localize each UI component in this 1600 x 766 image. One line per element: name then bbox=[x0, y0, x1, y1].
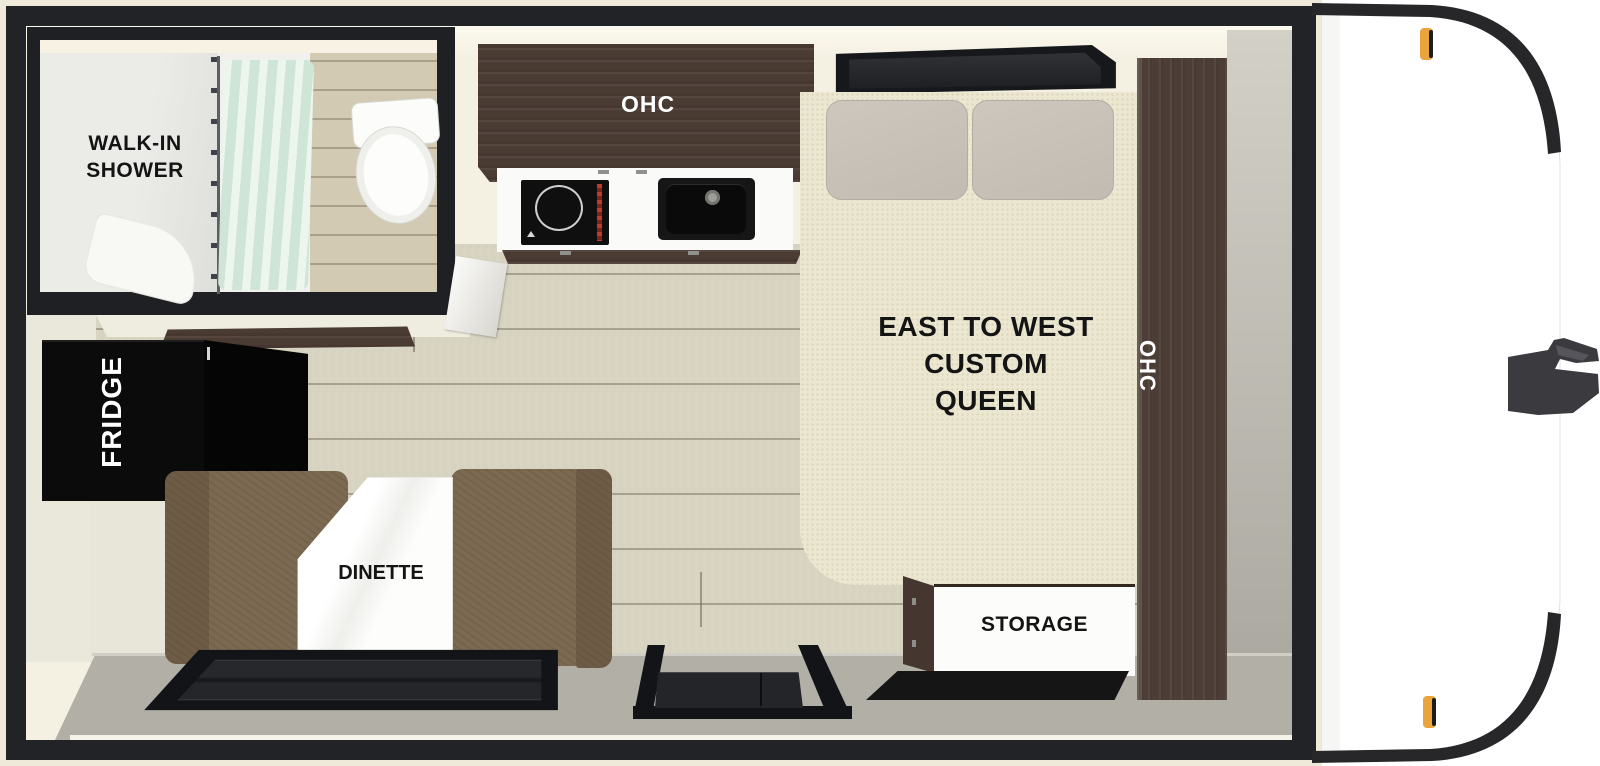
left-interior-wall-lower bbox=[90, 495, 172, 663]
dinette-label: DINETTE bbox=[306, 560, 456, 586]
bed-label: EAST TO WEST CUSTOM QUEEN bbox=[816, 306, 1156, 421]
bed-label-line3: QUEEN bbox=[935, 382, 1037, 419]
floor-plank-seam bbox=[700, 572, 702, 627]
pillow-icon bbox=[826, 100, 968, 200]
dinette-bench-right-back bbox=[576, 469, 612, 668]
kitchen-base-cabinet bbox=[502, 250, 802, 264]
bathroom-label-line2: SHOWER bbox=[86, 157, 184, 184]
bathroom-label-line1: WALK-IN bbox=[88, 130, 181, 157]
cabinet-handle-icon bbox=[636, 170, 647, 174]
storage-label: STORAGE bbox=[934, 612, 1135, 638]
bed-label-line1: EAST TO WEST bbox=[878, 308, 1094, 345]
rv-floorplan: WALK-IN SHOWER OHC EAST TO WEST CUSTOM Q… bbox=[0, 0, 1600, 766]
bed-label-line2: CUSTOM bbox=[924, 345, 1048, 382]
shower-curtain-icon bbox=[218, 60, 314, 290]
front-cap bbox=[1280, 0, 1600, 766]
floor-mat-icon bbox=[866, 671, 1129, 700]
burner-icon bbox=[535, 185, 583, 231]
cabinet-handle-icon bbox=[688, 251, 699, 255]
marker-light-bottom-shadow bbox=[1432, 698, 1436, 726]
bathroom-ceiling-band bbox=[40, 40, 437, 53]
bathroom-label: WALK-IN SHOWER bbox=[55, 128, 215, 186]
pillow-icon bbox=[972, 100, 1114, 200]
entry-step-icon bbox=[655, 670, 803, 708]
fridge-handle-icon bbox=[207, 347, 210, 360]
bottom-wall-trim bbox=[70, 735, 1292, 740]
dinette-bench-left-back bbox=[165, 471, 209, 664]
storage-side-panel bbox=[903, 573, 934, 673]
kitchen-ohc-label: OHC bbox=[598, 91, 698, 117]
sink-drain-icon bbox=[705, 190, 720, 205]
storage-hinge-icon bbox=[912, 640, 916, 647]
bedside-ohc-label: OHC bbox=[1135, 331, 1159, 401]
storage-hinge-icon bbox=[912, 598, 916, 605]
rear-window-glass bbox=[170, 658, 545, 702]
cabinet-handle-icon bbox=[598, 170, 609, 174]
front-cap-shade bbox=[1322, 6, 1340, 760]
cabinet-handle-icon bbox=[560, 251, 571, 255]
cooktop-controls-icon bbox=[597, 184, 602, 241]
entry-step-seam bbox=[760, 673, 762, 706]
marker-light-top-shadow bbox=[1429, 30, 1433, 58]
fridge-label: FRIDGE bbox=[97, 342, 127, 482]
